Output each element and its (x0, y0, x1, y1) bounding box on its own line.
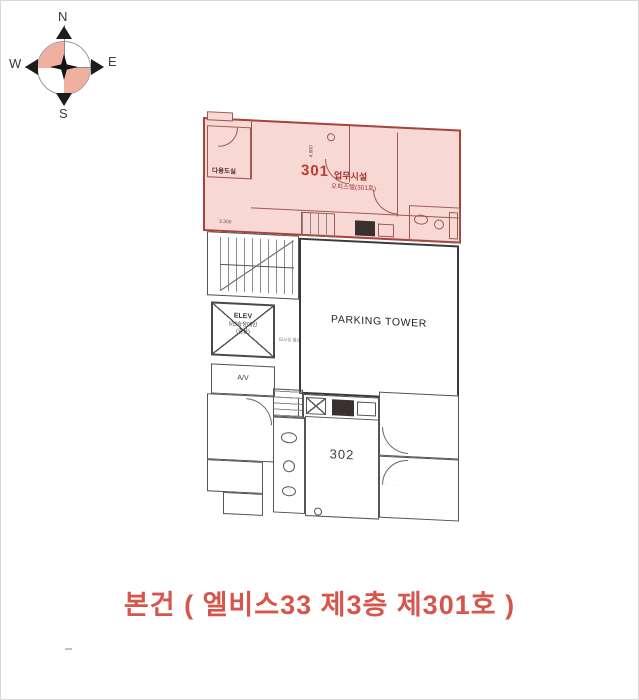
unit-301-number: 301 (301, 162, 329, 180)
unit-302-room-right-bottom (379, 456, 459, 522)
unit-301-highlighted-area: 다용도실 301 업무시설 오피스텔(301호) 3.300 4.800 (203, 117, 461, 244)
wall (397, 132, 398, 216)
compass-arrow-west-icon (25, 59, 38, 75)
compass-arrow-south-icon (56, 93, 72, 106)
unit-302-number: 302 (306, 445, 378, 464)
toilet-fixture (283, 460, 295, 473)
scanned-floor-plan-page: N S W E 다용도실 (0, 0, 639, 700)
unit-302-room-right-top (379, 392, 459, 460)
stove-fixture (332, 399, 354, 416)
stair-hatch (301, 212, 335, 238)
stair-hatch-302 (273, 388, 303, 417)
door-arc (382, 459, 408, 486)
compass-quadrant-nw (38, 42, 64, 68)
compass-west-label: W (9, 56, 21, 71)
compass-arrow-east-icon (91, 59, 104, 75)
tub-fixture (449, 212, 458, 239)
parking-tower-label: PARKING TOWER (301, 312, 457, 332)
room-bottom-left-1 (207, 459, 263, 494)
parking-tower: PARKING TOWER (299, 238, 459, 402)
door-arc (382, 427, 408, 454)
elevator: ELEV 5인승장애인 (겸용) (211, 301, 275, 358)
bathroom-301 (409, 205, 460, 243)
compass-quadrant-se (64, 68, 90, 94)
subject-property-caption: 본건 ( 엘비스33 제3층 제301호 ) (1, 583, 638, 622)
compass-north-label: N (58, 9, 67, 24)
stairwell (207, 231, 299, 299)
av-room: A/V (211, 363, 275, 396)
unit-301-sub-label: 오피스텔(301호) (331, 180, 376, 192)
door-arc (218, 127, 238, 148)
door-arc (373, 189, 397, 214)
bidet-fixture (282, 486, 296, 497)
elevator-label: ELEV 5인승장애인 (겸용) (213, 311, 273, 336)
dimension-height: 4.800 (308, 145, 314, 158)
floor-fixture (314, 507, 322, 515)
sink-fixture (281, 432, 297, 444)
compass-rose-icon: N S W E (9, 9, 121, 121)
compass-arrow-north-icon (56, 26, 72, 39)
bathroom-302 (273, 416, 305, 514)
compass-south-label: S (59, 106, 68, 121)
floor-plan: 다용도실 301 업무시설 오피스텔(301호) 3.300 4.800 (203, 117, 465, 530)
scan-artifact (65, 648, 72, 650)
dimension-width: 3.300 (219, 219, 232, 226)
utility-room-label: 다용도실 (212, 164, 236, 175)
sink-fixture (414, 214, 428, 225)
unit-302-main-room: 302 (305, 416, 379, 520)
utility-room: 다용도실 (207, 125, 251, 179)
counter-fixture (357, 402, 376, 417)
appliance (378, 224, 394, 238)
room-bottom-left-2 (223, 492, 263, 516)
wall (251, 121, 252, 179)
fan-box (306, 397, 326, 415)
av-room-label: A/V (212, 373, 274, 383)
appliance (355, 220, 375, 236)
compass-east-label: E (108, 54, 117, 69)
ceiling-fixture (327, 133, 335, 141)
toilet-fixture (434, 219, 444, 229)
door-arc (246, 398, 272, 425)
balcony-notch (207, 111, 233, 121)
